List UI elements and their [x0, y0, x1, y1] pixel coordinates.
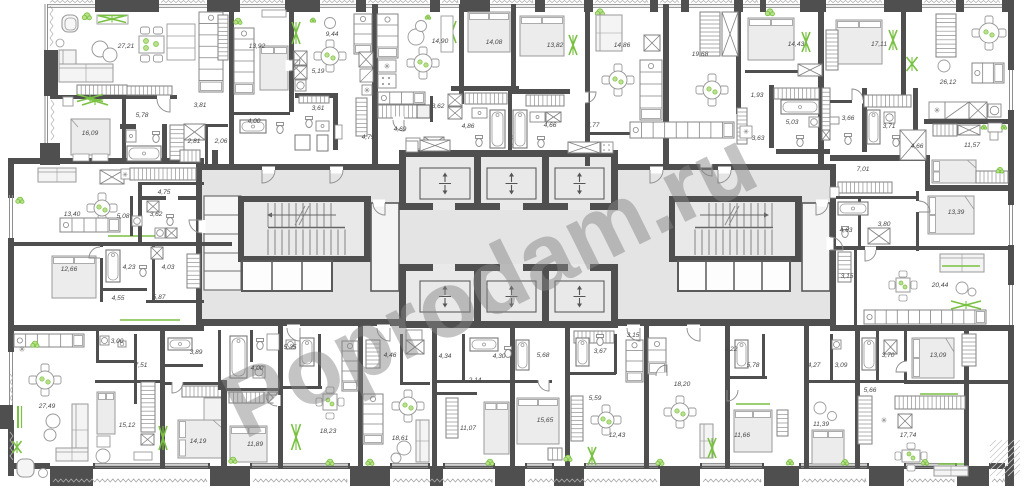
svg-text:11,89: 11,89 [247, 441, 263, 448]
svg-text:✳: ✳ [364, 86, 371, 95]
svg-text:4,66: 4,66 [544, 122, 557, 129]
svg-text:3,62: 3,62 [150, 211, 163, 218]
svg-text:3,81: 3,81 [194, 102, 207, 109]
svg-text:4,34: 4,34 [439, 353, 452, 360]
svg-text:13,09: 13,09 [930, 352, 947, 359]
svg-text:3,80: 3,80 [878, 221, 891, 228]
svg-text:15,12: 15,12 [119, 422, 136, 429]
svg-text:4,03: 4,03 [162, 264, 175, 271]
svg-text:14,86: 14,86 [614, 42, 631, 49]
svg-text:26,12: 26,12 [939, 79, 957, 86]
svg-text:27,21: 27,21 [117, 43, 135, 50]
svg-text:18,23: 18,23 [320, 428, 337, 435]
svg-text:13,40: 13,40 [64, 211, 81, 218]
svg-text:12,43: 12,43 [609, 432, 626, 439]
svg-text:15,65: 15,65 [537, 417, 554, 424]
svg-text:11,57: 11,57 [964, 142, 980, 149]
svg-text:✳: ✳ [384, 62, 391, 71]
svg-text:4,86: 4,86 [462, 123, 475, 130]
svg-text:✳: ✳ [934, 106, 941, 115]
svg-text:3,89: 3,89 [190, 349, 203, 356]
svg-text:17,74: 17,74 [900, 432, 917, 439]
svg-text:13,92: 13,92 [249, 43, 266, 50]
svg-text:5,68: 5,68 [537, 352, 550, 359]
svg-text:20,44: 20,44 [931, 282, 949, 289]
svg-text:3,63: 3,63 [752, 135, 765, 142]
svg-text:5,03: 5,03 [786, 119, 799, 126]
svg-text:4,00: 4,00 [251, 365, 264, 372]
svg-text:✳: ✳ [743, 128, 749, 136]
svg-text:5,19: 5,19 [312, 68, 325, 75]
svg-text:5,08: 5,08 [117, 213, 130, 220]
svg-text:18,20: 18,20 [674, 381, 691, 388]
svg-text:4,75: 4,75 [362, 134, 375, 141]
svg-text:5,59: 5,59 [589, 395, 602, 402]
svg-text:13,39: 13,39 [948, 209, 965, 216]
svg-text:3,67: 3,67 [594, 348, 607, 355]
svg-text:4,75: 4,75 [158, 189, 171, 196]
svg-text:4,00: 4,00 [248, 118, 261, 125]
svg-text:3,15: 3,15 [627, 332, 640, 339]
svg-text:4,30: 4,30 [493, 353, 506, 360]
svg-text:4,23: 4,23 [123, 264, 136, 271]
svg-text:4,55: 4,55 [112, 295, 125, 302]
svg-text:11,39: 11,39 [813, 421, 829, 428]
svg-text:✳: ✳ [19, 345, 26, 354]
svg-text:2,06: 2,06 [214, 138, 228, 145]
svg-text:2,81: 2,81 [187, 138, 201, 145]
svg-text:3,62: 3,62 [432, 103, 445, 110]
svg-text:5,22: 5,22 [725, 346, 738, 353]
svg-text:19,68: 19,68 [692, 51, 709, 58]
svg-text:3,70: 3,70 [882, 352, 895, 359]
svg-text:11,07: 11,07 [460, 425, 476, 432]
svg-text:3,61: 3,61 [312, 105, 325, 112]
svg-text:5,78: 5,78 [136, 112, 149, 119]
svg-text:14,90: 14,90 [432, 38, 449, 45]
svg-text:9,44: 9,44 [326, 31, 339, 38]
svg-text:12,66: 12,66 [61, 266, 78, 273]
svg-text:✳: ✳ [122, 171, 128, 179]
svg-text:4,63: 4,63 [840, 227, 853, 234]
svg-text:2,14: 2,14 [468, 377, 482, 384]
svg-text:1,93: 1,93 [751, 92, 764, 99]
svg-text:14,19: 14,19 [190, 438, 207, 445]
svg-text:5,87: 5,87 [153, 294, 166, 301]
svg-text:7,51: 7,51 [135, 362, 148, 369]
svg-text:17,11: 17,11 [871, 41, 887, 48]
svg-text:5,78: 5,78 [747, 362, 760, 369]
svg-text:16,09: 16,09 [82, 130, 99, 137]
svg-text:✳: ✳ [881, 416, 888, 425]
svg-text:5,35: 5,35 [284, 344, 297, 351]
svg-text:13,82: 13,82 [547, 42, 564, 49]
svg-text:14,08: 14,08 [486, 39, 503, 46]
svg-text:3,00: 3,00 [111, 338, 124, 345]
svg-text:3,66: 3,66 [842, 115, 855, 122]
svg-text:3,15: 3,15 [841, 273, 854, 280]
svg-text:18,61: 18,61 [392, 435, 409, 442]
svg-text:4,27: 4,27 [808, 362, 821, 369]
svg-text:7,01: 7,01 [857, 166, 870, 173]
svg-text:4,66: 4,66 [911, 143, 924, 150]
svg-text:14,43: 14,43 [788, 41, 805, 48]
svg-text:7,77: 7,77 [587, 122, 600, 129]
svg-text:3,09: 3,09 [835, 362, 848, 369]
svg-text:11,66: 11,66 [734, 432, 750, 439]
svg-text:4,69: 4,69 [394, 126, 407, 133]
svg-text:5,66: 5,66 [864, 387, 877, 394]
svg-text:4,46: 4,46 [384, 352, 397, 359]
svg-text:3,71: 3,71 [883, 123, 896, 130]
svg-text:27,49: 27,49 [38, 403, 56, 410]
